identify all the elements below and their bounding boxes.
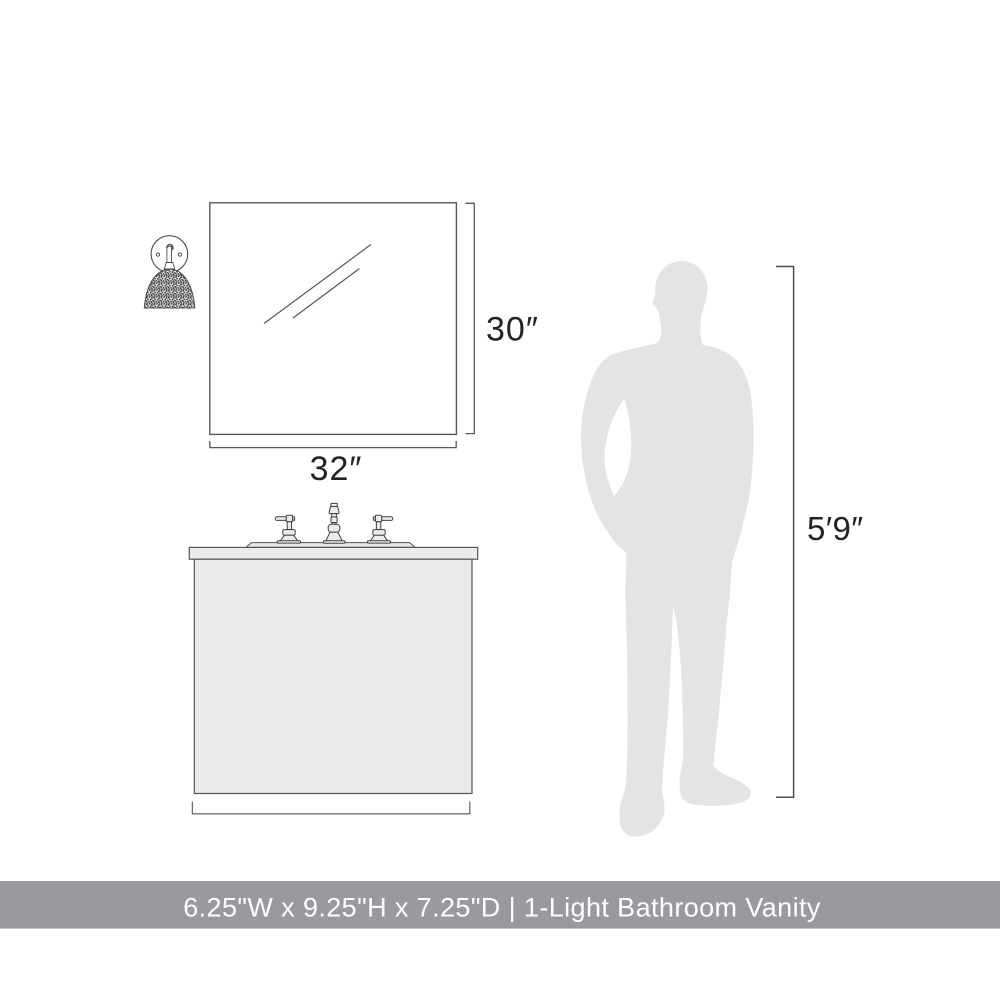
svg-text:6.25"W x 9.25"H x 7.25"D | 1-L: 6.25"W x 9.25"H x 7.25"D | 1-Light Bathr… bbox=[183, 893, 821, 923]
svg-text:5′9″: 5′9″ bbox=[807, 510, 864, 547]
svg-text:32″: 32″ bbox=[310, 450, 363, 488]
svg-text:30″: 30″ bbox=[486, 311, 539, 349]
